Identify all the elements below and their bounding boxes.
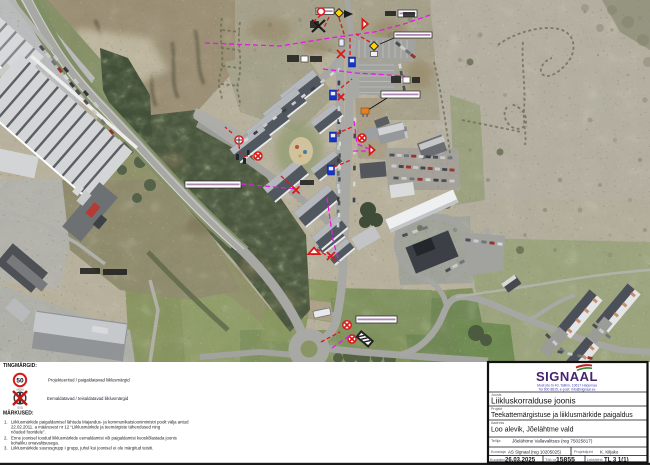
svg-text:TL 3 1(1): TL 3 1(1) xyxy=(604,457,629,463)
svg-text:K. Kiljako: K. Kiljako xyxy=(600,449,619,454)
svg-text:Jõelähtme Vallavalitsus (reg 7: Jõelähtme Vallavalitsus (reg 75025817) xyxy=(512,439,593,444)
svg-text:Koostaja: Koostaja xyxy=(491,450,507,454)
svg-text:Leht/lehti: Leht/lehti xyxy=(587,458,603,462)
svg-text:TINGMÄRGID:: TINGMÄRGID: xyxy=(3,362,37,369)
svg-text:SIGNAAL: SIGNAAL xyxy=(536,369,598,384)
svg-text:Tel 600 8815, e-post: info@sig: Tel 600 8815, e-post: info@signaal.ee xyxy=(539,388,596,392)
svg-text:Teekattemärgistuse ja liiklusm: Teekattemärgistuse ja liiklusmärkide pai… xyxy=(491,412,633,419)
svg-text:Töö nr: Töö nr xyxy=(545,458,557,462)
svg-text:(362b): (362b) xyxy=(16,389,23,392)
svg-text:Projekt: Projekt xyxy=(491,407,502,411)
svg-text:AS Signaal (reg 10205025): AS Signaal (reg 10205025) xyxy=(508,449,562,454)
svg-text:Loo alevik, Jõelähtme vald: Loo alevik, Jõelähtme vald xyxy=(491,427,574,434)
svg-text:3.: 3. xyxy=(4,446,8,451)
svg-text:15855: 15855 xyxy=(556,457,575,464)
svg-text:Liiklusmärkide suurusgrupp I g: Liiklusmärkide suurusgrupp I grupp, juhu… xyxy=(11,446,153,451)
svg-text:Projekteeritud / paigaldatavad: Projekteeritud / paigaldatavad liiklusmä… xyxy=(48,378,130,383)
svg-text:Liikluskorralduse joonis: Liikluskorralduse joonis xyxy=(491,397,576,406)
svg-text:50: 50 xyxy=(16,378,24,385)
svg-text:Tellija: Tellija xyxy=(491,439,501,443)
svg-text:(331): (331) xyxy=(17,407,23,410)
svg-text:2.: 2. xyxy=(4,436,8,441)
svg-text:Eemaldatavad / teisaldatavad l: Eemaldatavad / teisaldatavad liiklusmärg… xyxy=(47,396,129,401)
svg-text:1.: 1. xyxy=(4,420,8,425)
svg-text:26.03.2025: 26.03.2025 xyxy=(505,457,536,463)
svg-text:MÄRKUSED:: MÄRKUSED: xyxy=(3,410,34,417)
svg-text:nõuded fooridele”.: nõuded fooridele”. xyxy=(11,430,46,435)
svg-text:Projektijuht: Projektijuht xyxy=(574,450,594,454)
svg-text:Aadress: Aadress xyxy=(491,421,504,425)
svg-text:Kuupäev: Kuupäev xyxy=(490,458,505,462)
